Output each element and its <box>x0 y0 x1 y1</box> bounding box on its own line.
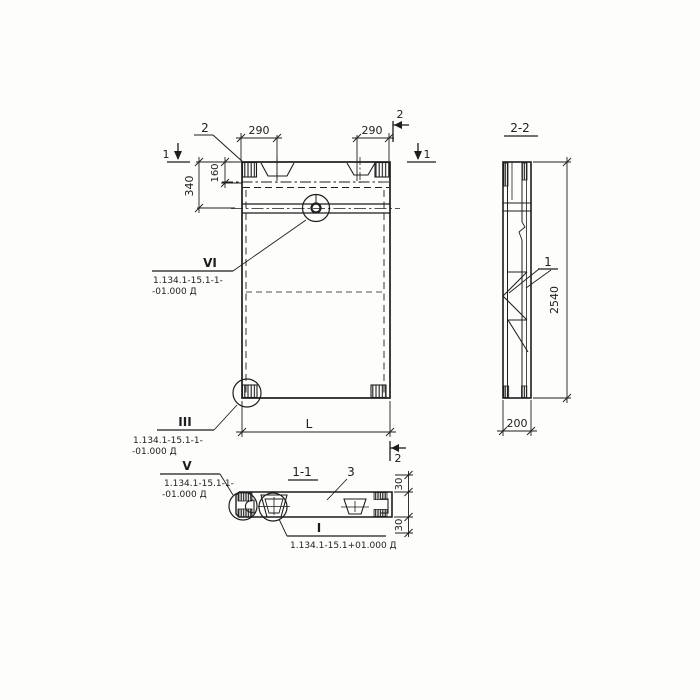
embedded-plate-bottom-left <box>243 385 258 398</box>
callout-part-1-label: 1 <box>544 255 552 269</box>
callout-vi-doc-1: 1.134.1-15.1-1- <box>153 276 223 286</box>
plate-edge-bottom-left <box>504 386 509 398</box>
callout-v: V 1.134.1-15.1-1- -01.000 Д <box>160 459 234 500</box>
callout-v-numeral: V <box>182 459 192 473</box>
callout-part-3 <box>327 479 347 500</box>
cut-mark-2-bottom-label: 2 <box>395 452 402 465</box>
cut-mark-1-right-label: 1 <box>424 148 431 161</box>
callout-plate-2-label: 2 <box>201 121 209 135</box>
callout-vi-doc-2: -01.000 Д <box>152 287 197 297</box>
embedded-plate-bottom-right <box>371 385 386 398</box>
callout-plate-2 <box>194 135 243 162</box>
plate-edge-top-right <box>522 163 527 180</box>
dim-2540: 2540 <box>548 286 561 314</box>
section-1-1-title: 1-1 <box>292 465 312 479</box>
cut-marks <box>167 121 436 461</box>
lifting-loop <box>312 204 321 213</box>
section-2-2-view <box>503 136 538 398</box>
callout-i: I 1.134.1-15.1+01.000 Д <box>279 519 397 551</box>
break-squiggle <box>519 222 525 240</box>
callout-v-doc-2: -01.000 Д <box>162 490 207 500</box>
callout-i-doc-1: 1.134.1-15.1+01.000 Д <box>290 541 397 551</box>
dim-30-top: 30 <box>394 478 405 491</box>
elevation-dimensions <box>195 133 396 437</box>
callout-iii-doc-2: -01.000 Д <box>132 447 177 457</box>
plan-view-1-1 <box>229 480 392 521</box>
dim-L: L <box>306 417 313 431</box>
callout-vi-numeral: VI <box>203 256 217 270</box>
dim-290-left: 290 <box>249 124 270 137</box>
plan-plate-left-bottom <box>238 509 252 517</box>
callout-vi: VI 1.134.1-15.1-1- -01.000 Д <box>152 220 306 297</box>
callout-i-numeral: I <box>317 521 321 535</box>
dim-340: 340 <box>183 176 196 197</box>
dim-290-right: 290 <box>362 124 383 137</box>
dim-160: 160 <box>210 163 221 182</box>
drawing-sheet: 290 290 340 160 L 1 1 2 2 2 VI 1.134.1-1… <box>0 0 700 700</box>
cut-mark-1-left-label: 1 <box>163 148 170 161</box>
section-2-2-title: 2-2 <box>510 121 530 135</box>
dim-200: 200 <box>507 417 528 430</box>
technical-drawing: 290 290 340 160 L 1 1 2 2 2 VI 1.134.1-1… <box>0 0 700 700</box>
plate-edge-bottom-right <box>522 386 527 398</box>
callout-v-doc-1: 1.134.1-15.1-1- <box>164 479 234 489</box>
lifting-slot-left <box>261 163 294 176</box>
cut-mark-2-top-label: 2 <box>397 108 404 121</box>
plate-edge-top-left <box>504 163 508 186</box>
embedded-plate-top-right <box>375 163 390 178</box>
callout-part-3-label: 3 <box>347 465 355 479</box>
dim-30-bottom: 30 <box>394 519 405 532</box>
callout-iii: III 1.134.1-15.1-1- -01.000 Д <box>132 405 237 457</box>
callout-iii-numeral: III <box>178 415 191 429</box>
callout-iii-doc-1: 1.134.1-15.1-1- <box>133 436 203 446</box>
embedded-plate-top-left <box>243 163 257 178</box>
lifting-slot-right <box>347 163 375 175</box>
elevation-view <box>222 157 400 407</box>
